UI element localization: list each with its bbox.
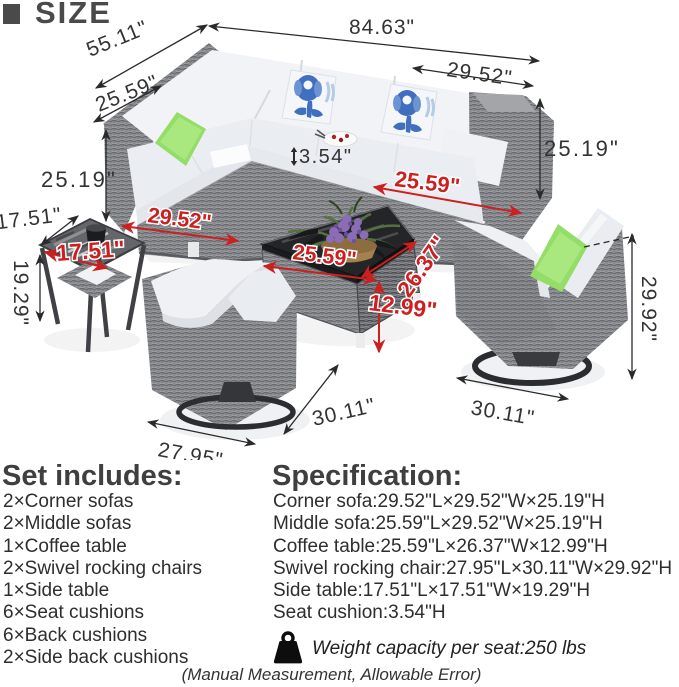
- svg-text:17.51": 17.51": [56, 235, 126, 266]
- svg-text:30.11": 30.11": [310, 394, 378, 431]
- svg-text:25.19": 25.19": [544, 136, 620, 161]
- svg-text:30.11": 30.11": [469, 396, 536, 430]
- svg-text:27.95": 27.95": [156, 438, 225, 460]
- svg-text:29.52": 29.52": [445, 58, 514, 90]
- svg-text:29.92": 29.92": [637, 276, 660, 342]
- svg-text:25.19": 25.19": [41, 167, 117, 192]
- svg-text:19.29": 19.29": [9, 260, 32, 326]
- svg-text:3.54": 3.54": [299, 146, 353, 168]
- svg-text:17.51": 17.51": [0, 203, 63, 234]
- svg-text:55.11": 55.11": [83, 16, 151, 61]
- svg-text:84.63": 84.63": [349, 16, 415, 39]
